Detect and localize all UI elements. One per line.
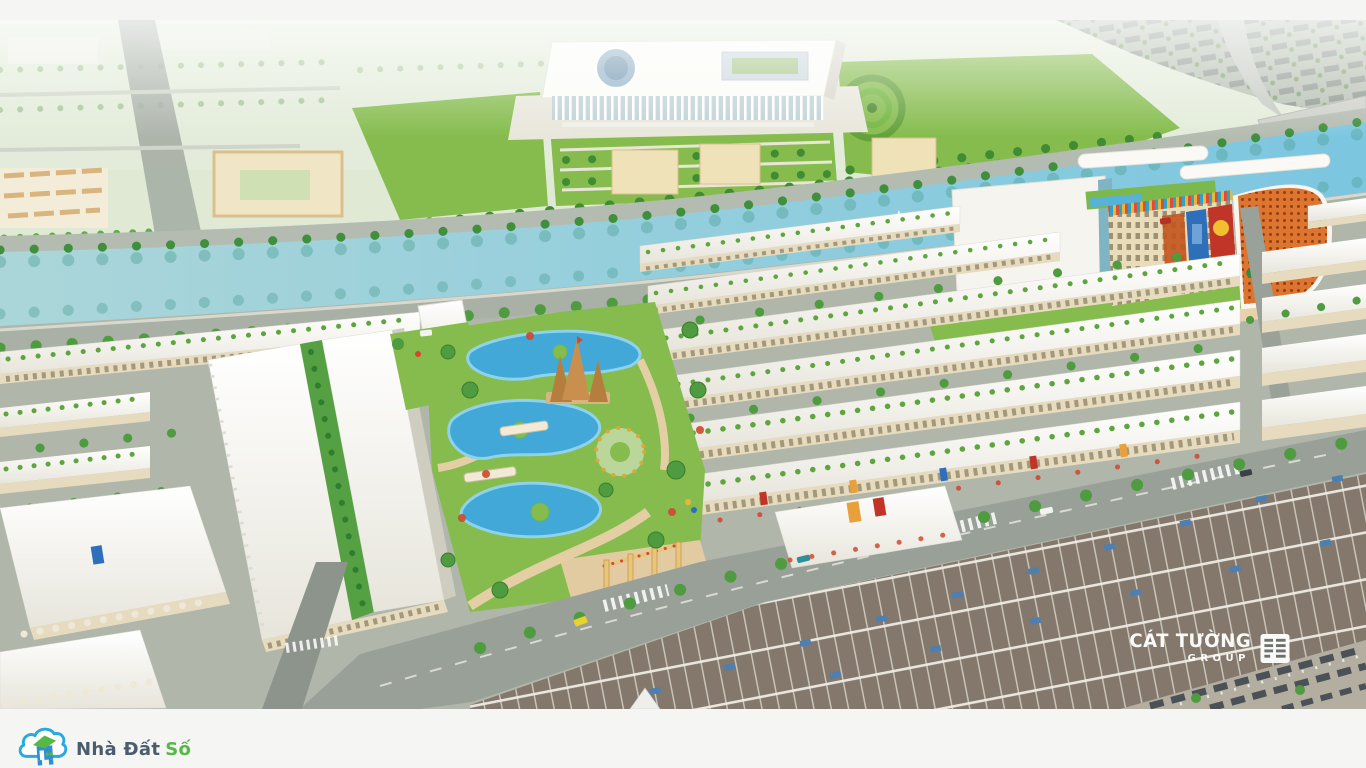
haze-overlay — [0, 20, 1366, 138]
developer-watermark: CÁT TƯỜNG GROUP — [1123, 632, 1290, 664]
watermark-text: CÁT TƯỜNG GROUP — [1123, 632, 1251, 664]
site-logo-text: Nhà ĐấtSố — [76, 739, 191, 760]
watermark-sub: GROUP — [1123, 654, 1250, 664]
page: CÁT TƯỜNG GROUP — [0, 0, 1366, 768]
watermark-brand: CÁT TƯỜNG — [1129, 632, 1251, 651]
logo-text-primary: Nhà Đất — [76, 739, 160, 760]
building-grid-icon — [1260, 634, 1290, 663]
logo-text-accent: Số — [165, 739, 191, 760]
footer-bar: Nhà ĐấtSố — [0, 709, 1366, 768]
site-logo[interactable]: Nhà ĐấtSố — [16, 717, 191, 768]
render-scene — [0, 20, 1366, 709]
villa-building — [612, 150, 678, 194]
masterplan-render: CÁT TƯỜNG GROUP — [0, 20, 1366, 709]
cloud-house-logo-icon — [16, 723, 68, 768]
